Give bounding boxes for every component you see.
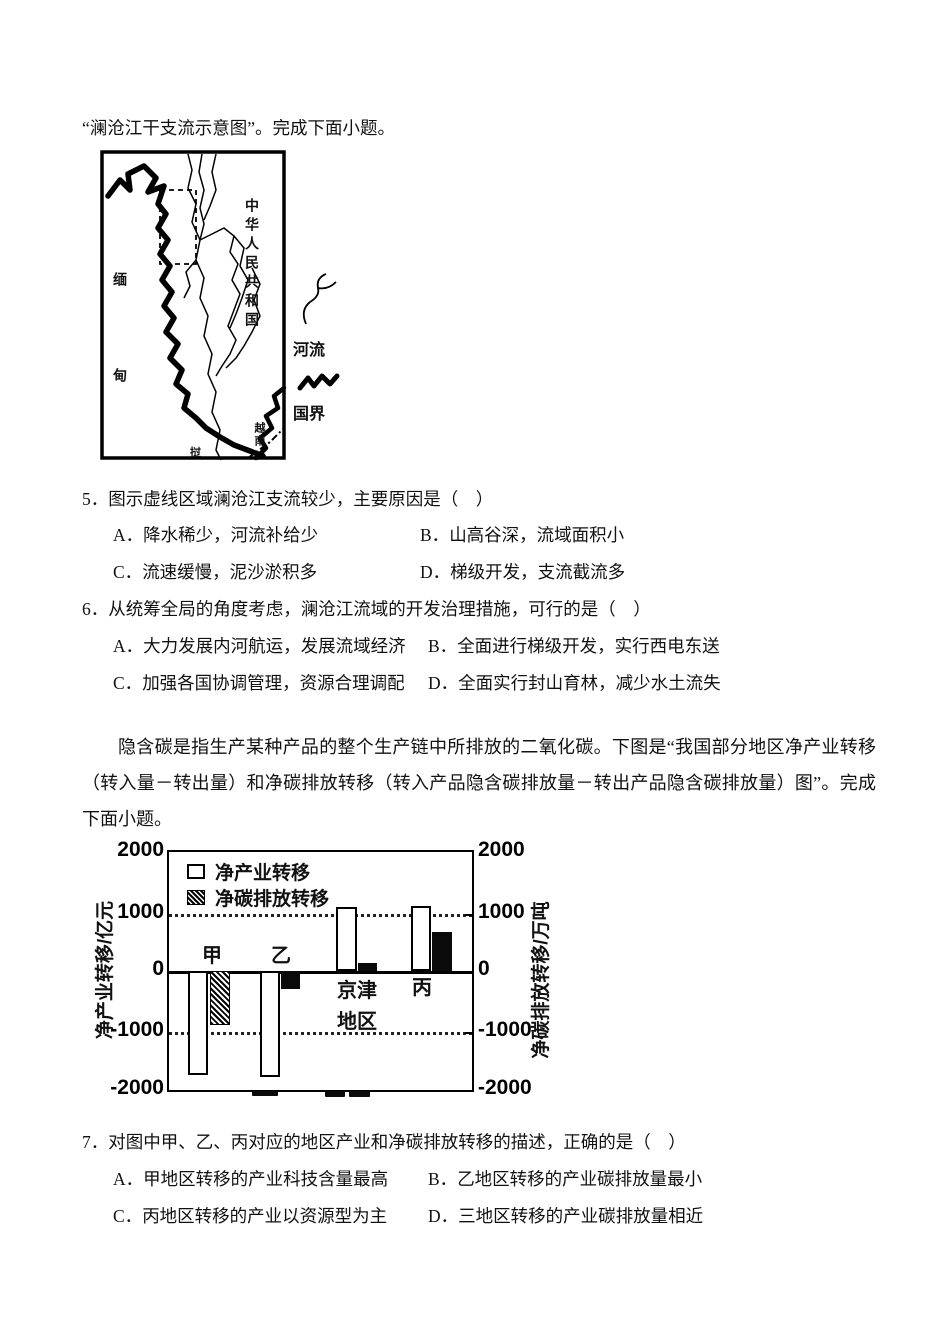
option-6c: C．加强各国协调管理，资源合理调配 bbox=[113, 670, 428, 695]
intro-line: “澜沧江干支流示意图”。完成下面小题。 bbox=[82, 116, 395, 141]
bar-industry-jia bbox=[188, 971, 208, 1075]
bar-carbon-jingjin bbox=[358, 963, 377, 971]
question-5-options-row-1: A．降水稀少，河流补给少 B．山高谷深，流域面积小 bbox=[113, 522, 624, 547]
option-7a: A．甲地区转移的产业科技含量最高 bbox=[113, 1166, 428, 1191]
map-label-laos: 挝 bbox=[190, 444, 201, 460]
cropped-caption-fragment bbox=[252, 1091, 278, 1096]
option-7b: B．乙地区转移的产业碳排放量最小 bbox=[428, 1166, 702, 1191]
option-5d: D．梯级开发，支流截流多 bbox=[420, 559, 625, 584]
left-tick: -2000 bbox=[102, 1078, 164, 1098]
option-7d: D．三地区转移的产业碳排放量相近 bbox=[428, 1203, 703, 1228]
right-tick: 1000 bbox=[478, 902, 548, 922]
option-6a: A．大力发展内河航运，发展流域经济 bbox=[113, 633, 428, 658]
bar-industry-yi bbox=[260, 971, 280, 1077]
chart-legend: 净产业转移 净碳排放转移 bbox=[187, 858, 329, 910]
legend-item-carbon: 净碳排放转移 bbox=[187, 884, 329, 910]
question-6-options-row-1: A．大力发展内河航运，发展流域经济 B．全面进行梯级开发，实行西电东送 bbox=[113, 633, 720, 658]
axis-tick-mark bbox=[465, 914, 472, 916]
right-tick: -1000 bbox=[478, 1020, 548, 1040]
border-legend-icon bbox=[300, 376, 337, 388]
river-legend-icon bbox=[304, 274, 336, 324]
question-7-stem: 7．对图中甲、乙、丙对应的地区产业和净碳排放转移的描述，正确的是（ ） bbox=[82, 1129, 686, 1154]
option-5a: A．降水稀少，河流补给少 bbox=[113, 522, 420, 547]
legend-border-label: 国界 bbox=[286, 400, 332, 424]
axis-tick-mark bbox=[465, 971, 472, 973]
dark-bar-swatch-icon bbox=[187, 890, 205, 905]
right-tick: 2000 bbox=[478, 840, 548, 860]
white-bar-swatch-icon bbox=[187, 864, 205, 879]
question-5-options-row-2: C．流速缓慢，泥沙淤积多 D．梯级开发，支流截流多 bbox=[113, 559, 625, 584]
carbon-passage: 隐含碳是指生产某种产品的整个生产链中所排放的二氧化碳。下图是“我国部分地区净产业… bbox=[82, 729, 876, 837]
bar-chart: 净产业转移/亿元 净碳排放转移/万吨 2000 1000 0 -1000 -20… bbox=[88, 840, 570, 1112]
bar-carbon-jia bbox=[210, 971, 230, 1025]
map-label-china: 中华人民共和国 bbox=[240, 198, 260, 331]
category-jingjin: 京津 地区 bbox=[329, 976, 385, 1038]
category-yi: 乙 bbox=[261, 942, 301, 970]
lancang-river-map: 中华人民共和国 缅甸 越南 挝 河流 国界 bbox=[100, 150, 345, 468]
cropped-caption-fragment bbox=[349, 1091, 370, 1097]
option-5c: C．流速缓慢，泥沙淤积多 bbox=[113, 559, 420, 584]
question-number: 7． bbox=[82, 1132, 108, 1152]
chart-plot: 甲 乙 京津 地区 丙 净产业转移 净碳排放转移 bbox=[167, 850, 474, 1092]
left-tick: 2000 bbox=[102, 840, 164, 860]
bar-carbon-bing bbox=[432, 932, 452, 971]
map-label-myanmar: 缅甸 bbox=[108, 272, 128, 464]
gridline-minus1000 bbox=[169, 1032, 472, 1035]
right-tick: 0 bbox=[478, 959, 548, 979]
legend-river-label: 河流 bbox=[286, 336, 332, 360]
category-jia: 甲 bbox=[192, 942, 232, 970]
map-label-vietnam: 越南 bbox=[251, 422, 267, 448]
bar-industry-bing bbox=[411, 906, 431, 971]
axis-tick-mark bbox=[465, 1032, 472, 1034]
exam-page: “澜沧江干支流示意图”。完成下面小题。 bbox=[0, 0, 950, 1344]
option-7c: C．丙地区转移的产业以资源型为主 bbox=[113, 1203, 428, 1228]
question-5-stem: 5．图示虚线区域澜沧江支流较少，主要原因是（ ） bbox=[82, 486, 493, 511]
question-6-stem: 6．从统筹全局的角度考虑，澜沧江流域的开发治理措施，可行的是（ ） bbox=[82, 596, 651, 621]
legend-item-industry: 净产业转移 bbox=[187, 858, 329, 884]
left-tick: 1000 bbox=[102, 902, 164, 922]
bar-carbon-yi bbox=[281, 971, 300, 989]
option-6b: B．全面进行梯级开发，实行西电东送 bbox=[428, 633, 720, 658]
category-bing: 丙 bbox=[402, 974, 442, 1002]
option-5b: B．山高谷深，流域面积小 bbox=[420, 522, 624, 547]
right-tick: -2000 bbox=[478, 1078, 548, 1098]
bar-industry-jingjin bbox=[336, 907, 357, 971]
question-7-options-row-1: A．甲地区转移的产业科技含量最高 B．乙地区转移的产业碳排放量最小 bbox=[113, 1166, 702, 1191]
question-7-options-row-2: C．丙地区转移的产业以资源型为主 D．三地区转移的产业碳排放量相近 bbox=[113, 1203, 703, 1228]
option-6d: D．全面实行封山育林，减少水土流失 bbox=[428, 670, 721, 695]
cropped-caption-fragment bbox=[325, 1091, 345, 1097]
left-tick: -1000 bbox=[102, 1020, 164, 1040]
left-tick: 0 bbox=[102, 959, 164, 979]
question-number: 6． bbox=[82, 599, 108, 619]
question-number: 5． bbox=[82, 489, 108, 509]
question-6-options-row-2: C．加强各国协调管理，资源合理调配 D．全面实行封山育林，减少水土流失 bbox=[113, 670, 721, 695]
